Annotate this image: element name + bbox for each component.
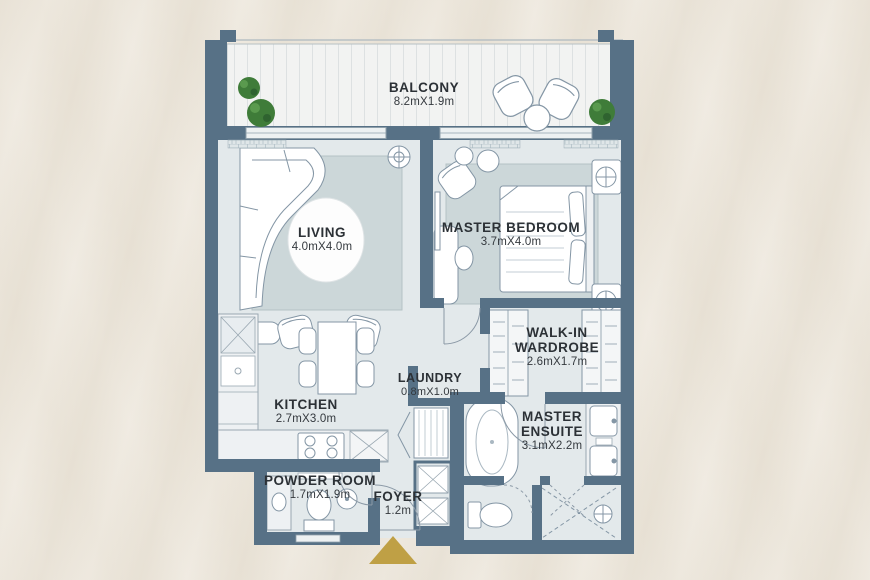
plant-icon	[589, 99, 615, 125]
powder-window-sill	[296, 535, 340, 542]
ceiling-light-icon	[388, 146, 410, 168]
ensuite-vanity	[586, 402, 621, 480]
bed	[500, 186, 594, 292]
coffee-table	[288, 198, 364, 282]
bathtub	[466, 398, 518, 486]
floorplan-page: BALCONY 8.2mX1.9m LIVING 4.0mX4.0m MASTE…	[0, 0, 870, 580]
stove-icon	[298, 433, 344, 460]
bedroom-light-icon	[455, 147, 473, 165]
floorplan-graphic	[0, 0, 870, 580]
ensuite-toilet	[468, 502, 512, 528]
